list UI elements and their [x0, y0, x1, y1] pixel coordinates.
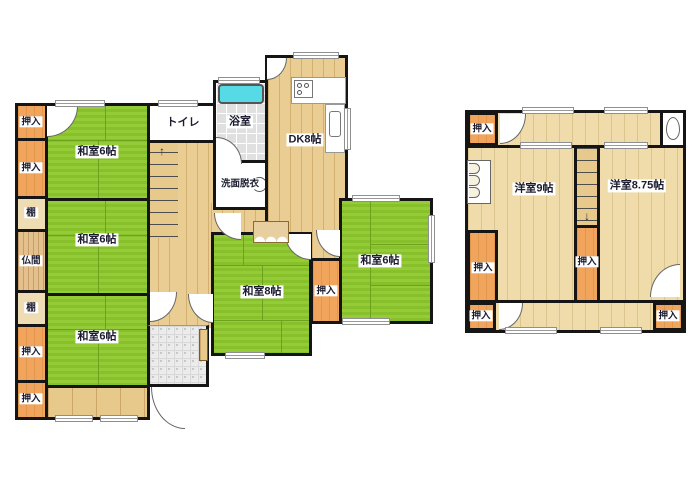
label-bath: 浴室	[227, 115, 253, 128]
entrance-door-arc	[151, 387, 185, 429]
window	[505, 327, 557, 334]
label-western875: 洋室8.75帖	[608, 179, 666, 192]
label-washroom: 洗面脱衣	[219, 178, 261, 189]
bathtub	[218, 84, 264, 104]
label-washitsu6-mid: 和室6帖	[75, 233, 118, 246]
label-oshiire: 押入	[19, 393, 42, 404]
window	[522, 107, 574, 114]
stairs-down-arrow-icon: ↓	[584, 209, 590, 223]
shoe-cabinet	[199, 329, 208, 361]
stove-icon	[294, 80, 313, 98]
window	[225, 352, 265, 359]
window	[55, 100, 105, 107]
sink-icon	[329, 111, 341, 137]
label-oshiire-2f-left: 押入	[471, 262, 494, 273]
room-washitsu6-mid	[45, 198, 150, 296]
label-tana: 棚	[24, 302, 38, 313]
label-tana: 棚	[24, 207, 38, 218]
label-washitsu6-right: 和室6帖	[358, 254, 401, 267]
label-washitsu6-top: 和室6帖	[75, 145, 118, 158]
label-washitsu8: 和室8帖	[240, 285, 283, 298]
label-oshiire: 押入	[19, 346, 42, 357]
window	[100, 415, 138, 422]
tokonoma-decor	[253, 221, 289, 243]
label-oshiire: 押入	[19, 162, 42, 173]
label-dk: DK8帖	[286, 133, 323, 146]
window	[352, 195, 400, 202]
label-oshiire-center: 押入	[314, 285, 337, 296]
window	[428, 215, 435, 263]
washbasin-icon	[666, 117, 680, 140]
window	[344, 108, 351, 150]
window	[342, 318, 390, 325]
label-oshiire-2f-top: 押入	[470, 123, 493, 134]
label-butsuma: 仏間	[19, 255, 42, 266]
corridor-2f-top	[465, 110, 686, 148]
window	[600, 327, 642, 334]
label-oshiire-2f-center: 押入	[575, 256, 598, 267]
label-oshiire: 押入	[19, 116, 42, 127]
label-western9: 洋室9帖	[512, 182, 555, 195]
stairs-up-arrow-icon: ↑	[159, 144, 165, 158]
window	[604, 142, 648, 149]
window	[293, 52, 339, 59]
window	[158, 100, 198, 107]
window	[55, 415, 93, 422]
label-oshiire-2f-bottom-left: 押入	[469, 310, 492, 321]
floor-plan: ↑	[0, 0, 700, 480]
label-washitsu6-bottom: 和室6帖	[75, 330, 118, 343]
window	[604, 107, 648, 114]
window	[520, 142, 572, 149]
label-oshiire-2f-bottom-right: 押入	[656, 310, 679, 321]
window	[218, 77, 260, 84]
label-toilet: トイレ	[165, 116, 202, 129]
